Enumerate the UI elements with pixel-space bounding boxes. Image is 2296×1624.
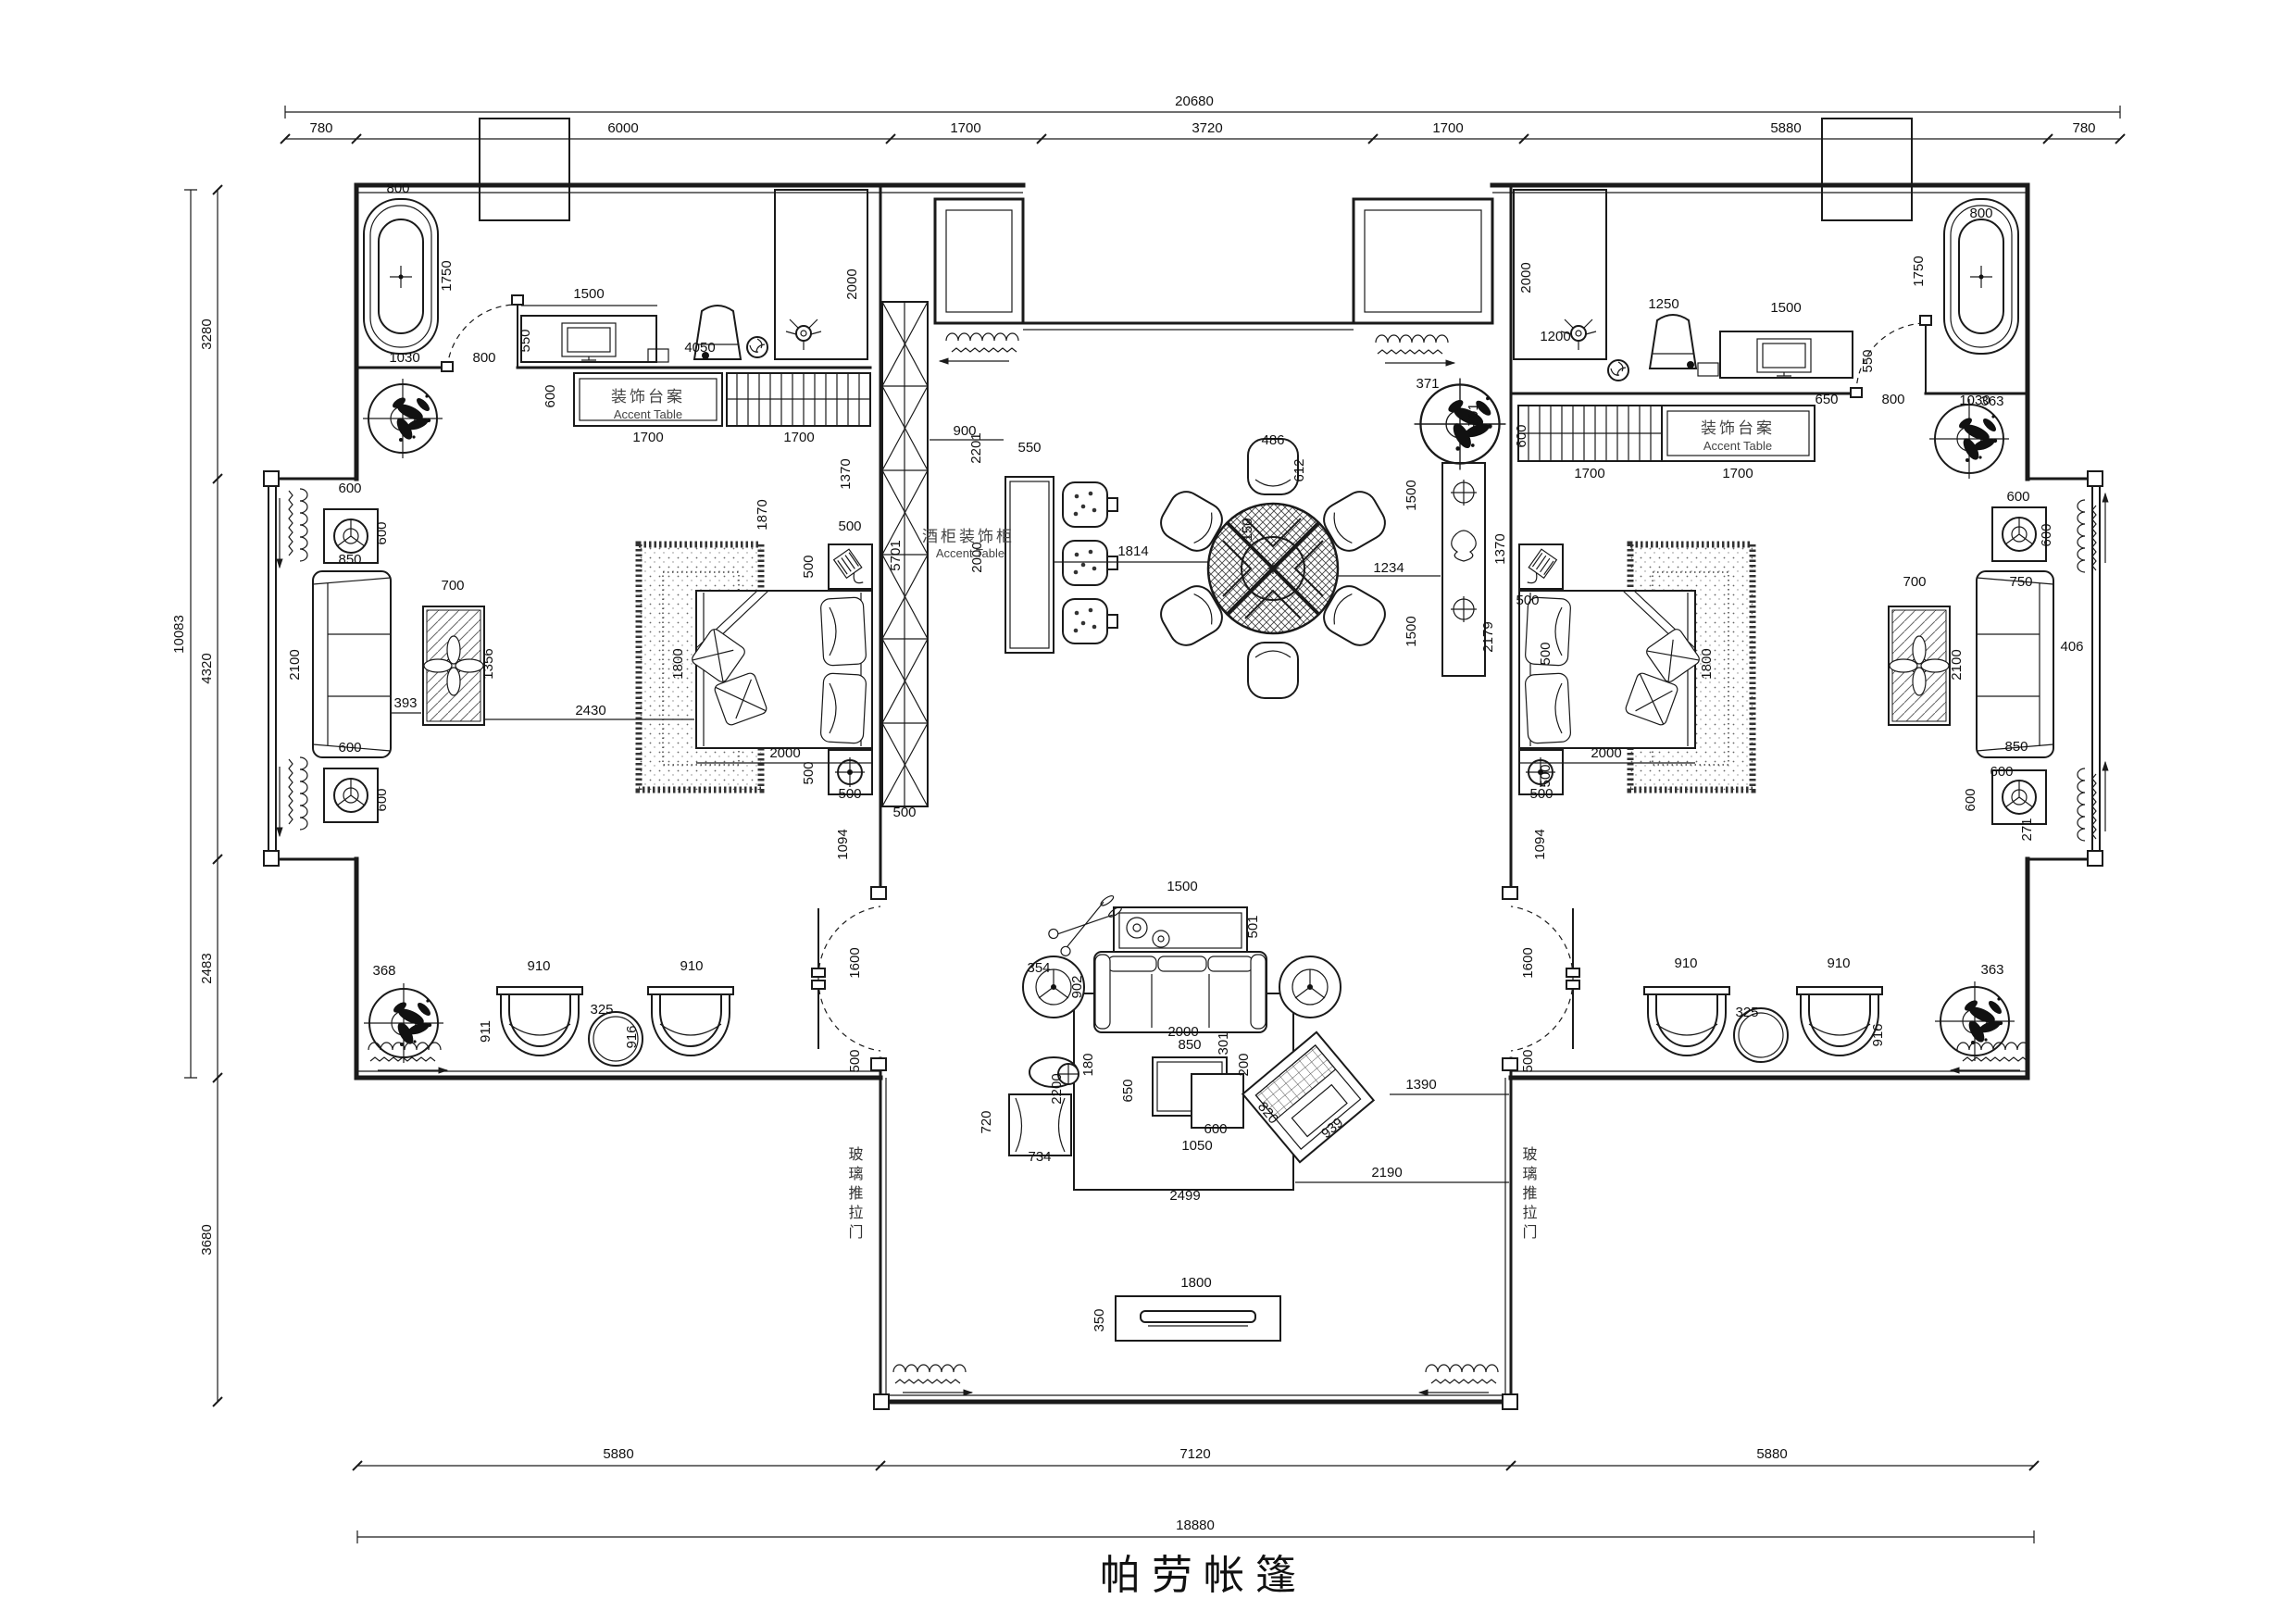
dim-label: 1370 xyxy=(838,458,854,489)
dim-label: 734 xyxy=(1028,1149,1051,1165)
dining-table xyxy=(1208,504,1338,633)
dim-label: 1700 xyxy=(1432,120,1463,136)
dim-label: 20680 xyxy=(1175,94,1214,109)
dim-label: 350 xyxy=(1092,1308,1107,1331)
dim-label: 600 xyxy=(374,788,390,811)
lounge-chair-right-1 xyxy=(1644,987,1729,1056)
dim-label: 2483 xyxy=(199,953,215,983)
dim-label: 1700 xyxy=(632,430,663,445)
dim-label: 1701 xyxy=(1466,403,1481,433)
dim-label: 600 xyxy=(1204,1121,1227,1137)
dim-label: 2499 xyxy=(1169,1188,1200,1204)
entry-column-left xyxy=(935,199,1023,323)
dim-label: 916 xyxy=(624,1025,640,1048)
dim-label: 910 xyxy=(680,958,703,974)
dim-label: 354 xyxy=(1027,960,1050,976)
dim-label: 700 xyxy=(441,578,464,593)
vanity-left xyxy=(521,316,668,362)
dim-label: 2100 xyxy=(287,649,303,680)
dim-label: 600 xyxy=(543,384,558,407)
dim-label: 800 xyxy=(1881,392,1904,407)
dim-label: 1500 xyxy=(573,286,604,302)
dim-label: 1500 xyxy=(1404,480,1419,510)
dim-label: 1800 xyxy=(1699,648,1715,679)
accent-table-label-right-zh: 装饰台案 xyxy=(1701,419,1775,437)
dim-label: 2100 xyxy=(1949,649,1965,680)
dim-label: 393 xyxy=(393,695,417,711)
dim-label: 1234 xyxy=(1373,560,1404,576)
dim-label: 500 xyxy=(1538,642,1554,665)
dim-label: 1700 xyxy=(1574,466,1604,481)
dim-label: 2000 xyxy=(1591,745,1621,761)
accent-table-label-right-en: Accent Table xyxy=(1703,439,1772,453)
dim-label: 600 xyxy=(1963,788,1978,811)
dim-label: 2000 xyxy=(1518,262,1534,293)
dim-label: 2190 xyxy=(1371,1165,1402,1181)
decor-partition-right xyxy=(1442,463,1485,676)
bed-left xyxy=(690,591,872,748)
dim-label: 2179 xyxy=(1480,621,1496,652)
dim-label: 500 xyxy=(838,518,861,534)
dim-label: 500 xyxy=(1529,786,1553,802)
dim-label: 2200 xyxy=(1049,1073,1065,1104)
bar-cabinet-label-en: Accent Table xyxy=(936,546,1004,560)
dim-label: 1870 xyxy=(755,499,770,530)
dim-label: 3280 xyxy=(199,319,215,349)
dim-label: 850 xyxy=(338,552,361,568)
sofa-left xyxy=(313,571,391,757)
dim-label: 1750 xyxy=(439,260,455,291)
dim-label: 800 xyxy=(386,181,409,196)
plant-left-wing xyxy=(364,983,443,1063)
dim-label: 600 xyxy=(338,740,361,756)
coffee-table-right xyxy=(1889,606,1950,725)
dim-label: 1250 xyxy=(1648,296,1678,312)
dim-label: 1390 xyxy=(1405,1077,1436,1093)
dim-label: 4320 xyxy=(199,653,215,683)
dim-label: 500 xyxy=(1516,593,1539,608)
side-table-left-bottom xyxy=(324,768,378,822)
accent-table-label-left-en: Accent Table xyxy=(614,407,682,421)
dim-label: 750 xyxy=(2009,574,2032,590)
dimension-leader-lines xyxy=(392,306,1695,1182)
bar-counter xyxy=(1005,477,1054,653)
dim-label: 7120 xyxy=(1179,1446,1210,1462)
dim-label: 1800 xyxy=(670,648,686,679)
dim-label: 916 xyxy=(1870,1023,1886,1046)
dim-label: 501 xyxy=(1245,915,1261,938)
double-door-right xyxy=(1503,887,1579,1070)
dim-label: 550 xyxy=(1860,349,1876,372)
dim-label: 1094 xyxy=(835,829,851,859)
vanity-right xyxy=(1698,331,1853,378)
dim-label: 1750 xyxy=(1911,256,1927,286)
dim-label: 720 xyxy=(979,1110,994,1133)
dim-label: 910 xyxy=(1827,956,1850,971)
dim-label: 902 xyxy=(1069,975,1085,998)
dim-label: 780 xyxy=(309,120,332,136)
entry-column-right xyxy=(1354,199,1492,323)
dim-label: 500 xyxy=(801,761,817,784)
dim-label: 550 xyxy=(1017,440,1041,456)
dim-label: 850 xyxy=(2004,739,2028,755)
dim-label: 200 xyxy=(1236,1053,1252,1076)
dim-label: 3680 xyxy=(199,1224,215,1255)
nightstand-left-top xyxy=(829,544,872,589)
dim-label: 500 xyxy=(838,786,861,802)
dim-label: 271 xyxy=(2019,818,2035,841)
deck-bench xyxy=(1116,1296,1280,1341)
dim-label: 3720 xyxy=(1192,120,1222,136)
dim-label: 550 xyxy=(518,329,533,352)
steam-cabinet-right xyxy=(1822,119,1912,220)
dim-label: 301 xyxy=(1216,1031,1231,1055)
bathtub-right xyxy=(1944,199,2018,354)
floor-lamp-right xyxy=(1279,956,1341,1018)
glass-door-label-left: 玻璃推拉门 xyxy=(846,1146,864,1243)
plant-left-bath xyxy=(363,379,443,458)
dim-label: 2000 xyxy=(844,269,860,299)
nightstand-right-top xyxy=(1519,544,1563,589)
lounge-chair-left-1 xyxy=(497,987,582,1056)
dim-label: 650 xyxy=(1815,392,1838,407)
dim-label: 325 xyxy=(1735,1005,1758,1020)
dim-label: 700 xyxy=(1903,574,1926,590)
dim-label: 1050 xyxy=(1181,1138,1212,1154)
coffee-table-living-2 xyxy=(1192,1074,1243,1128)
dim-label: 800 xyxy=(472,350,495,366)
dim-label: 780 xyxy=(2072,120,2095,136)
dim-label: 363 xyxy=(1980,962,2003,978)
dim-label: 600 xyxy=(338,481,361,496)
dim-label: 1700 xyxy=(783,430,814,445)
dim-label: 910 xyxy=(527,958,550,974)
towel-swirl-right xyxy=(1608,360,1628,381)
dim-label: 911 xyxy=(478,1020,493,1043)
dim-label: 371 xyxy=(1416,376,1439,392)
dim-label: 1500 xyxy=(1770,300,1801,316)
dim-label: 180 xyxy=(1080,1053,1096,1076)
bar-cabinet-label-zh: 酒柜装饰柜 xyxy=(922,528,1015,545)
dim-label: 406 xyxy=(2060,639,2083,655)
dim-label: 18880 xyxy=(1176,1518,1215,1533)
dim-label: 5880 xyxy=(1770,120,1801,136)
dim-label: 910 xyxy=(1674,956,1697,971)
dim-label: 5701 xyxy=(888,540,904,570)
fireplace-box xyxy=(1242,1032,1373,1162)
dim-label: 363 xyxy=(1980,394,2003,409)
dim-label: 600 xyxy=(374,521,390,544)
dim-label: 1030 xyxy=(389,350,419,366)
dim-label: 6000 xyxy=(607,120,638,136)
dim-label: 1370 xyxy=(1492,533,1508,564)
floor-plan-canvas: 2068078060001700372017005880780100833280… xyxy=(0,0,2296,1624)
coffee-table-left xyxy=(423,606,484,725)
dim-label: 2000 xyxy=(769,745,800,761)
plant-entry-right xyxy=(1415,379,1506,470)
dim-label: 5880 xyxy=(1756,1446,1787,1462)
dim-label: 500 xyxy=(892,805,916,820)
dim-label: 600 xyxy=(2039,523,2054,546)
dim-label: 500 xyxy=(801,555,817,578)
plant-right-bath xyxy=(1929,399,2009,479)
dim-label: 850 xyxy=(1178,1037,1201,1053)
dim-label: 1600 xyxy=(1520,947,1536,978)
dim-label: 500 xyxy=(1538,764,1554,787)
bathtub-left xyxy=(364,199,438,354)
lounge-chair-left-2 xyxy=(648,987,733,1056)
dim-label: 1200 xyxy=(1540,329,1570,344)
dim-label: 600 xyxy=(1514,424,1529,447)
dim-label: 1500 xyxy=(1167,879,1197,894)
sofa-living xyxy=(1094,952,1267,1032)
dim-label: 368 xyxy=(372,963,395,979)
dim-label: 1700 xyxy=(1722,466,1753,481)
dim-label: 150 xyxy=(1240,518,1255,541)
glass-door-label-right: 玻璃推拉门 xyxy=(1520,1146,1538,1243)
dim-label: 600 xyxy=(2006,489,2029,505)
dim-label: 500 xyxy=(847,1049,863,1072)
dim-label: 486 xyxy=(1261,432,1284,448)
sofa-right xyxy=(1977,571,2053,757)
dim-label: 600 xyxy=(1990,764,2013,780)
accent-table-label-left-zh: 装饰台案 xyxy=(611,388,685,406)
dim-label: 1500 xyxy=(1404,616,1419,646)
dim-label: 1800 xyxy=(1180,1275,1211,1291)
dim-label: 325 xyxy=(590,1002,613,1018)
dim-label: 800 xyxy=(1969,206,1992,221)
table-lamp-right xyxy=(1650,315,1696,369)
towel-swirl-left xyxy=(747,337,767,357)
dim-label: 1600 xyxy=(847,947,863,978)
dim-label: 2430 xyxy=(575,703,605,718)
dim-label: 10083 xyxy=(171,615,187,654)
dim-label: 500 xyxy=(1520,1049,1536,1072)
dim-label: 1814 xyxy=(1117,543,1148,559)
dim-label: 650 xyxy=(1120,1079,1136,1102)
dim-label: 4050 xyxy=(684,340,715,356)
dim-label: 900 xyxy=(953,423,976,439)
steam-cabinet-left xyxy=(480,119,569,220)
dim-label: 1356 xyxy=(480,648,496,679)
dim-label: 1700 xyxy=(950,120,980,136)
plan-title: 帕劳帐篷 xyxy=(1100,1553,1307,1598)
dim-label: 612 xyxy=(1291,458,1307,481)
floor-plan-svg: 2068078060001700372017005880780100833280… xyxy=(0,0,2296,1624)
dim-label: 5880 xyxy=(603,1446,633,1462)
plant-right-wing xyxy=(1935,981,2015,1061)
dim-label: 1094 xyxy=(1532,829,1548,859)
bed-right xyxy=(1519,591,1702,748)
